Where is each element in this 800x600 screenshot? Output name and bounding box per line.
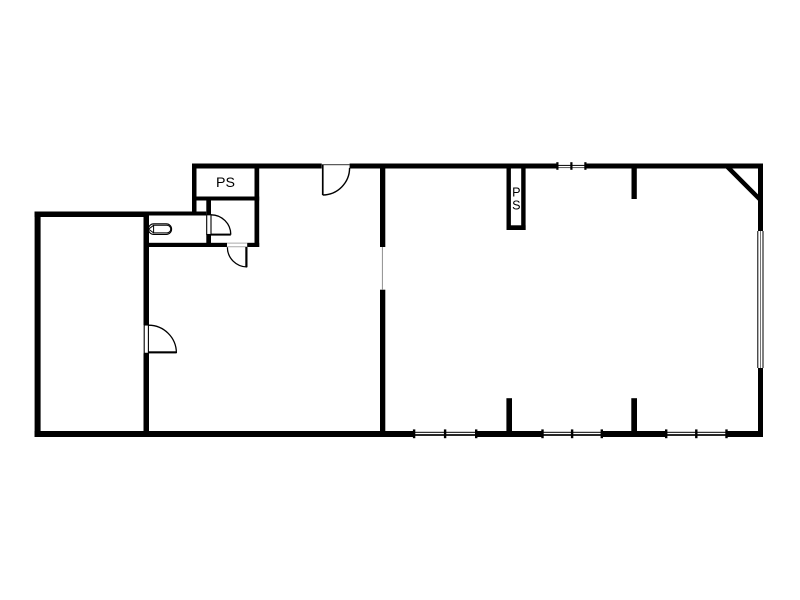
svg-text:PS: PS [216,175,235,191]
svg-text:P: P [512,185,520,199]
svg-text:S: S [512,199,520,213]
